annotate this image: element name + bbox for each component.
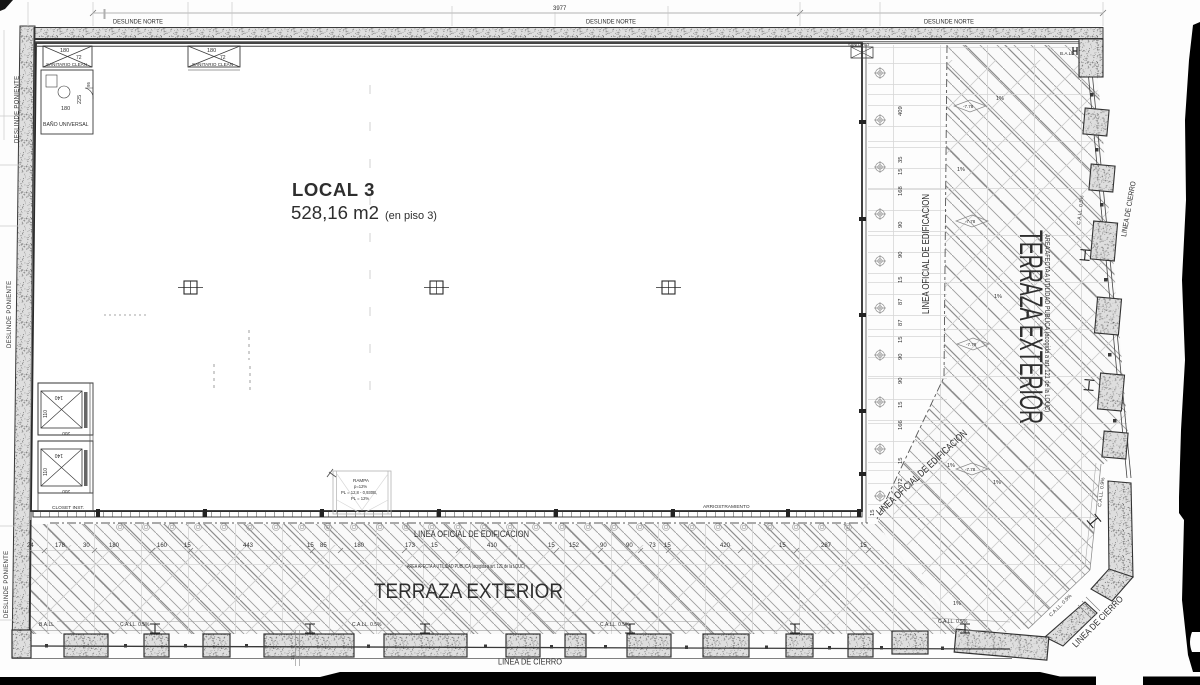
svg-text:AREA AFECTA A UTILIDAD PUBLICA: AREA AFECTA A UTILIDAD PUBLICA (acogida … [1043,234,1050,412]
svg-text:443: 443 [243,543,254,549]
svg-text:SANITARIO CLEAN: SANITARIO CLEAN [46,62,87,67]
svg-text:1%: 1% [994,294,1002,300]
svg-text:(en piso 3): (en piso 3) [385,210,437,222]
svg-text:B.A.LL: B.A.LL [39,622,54,628]
svg-text:168: 168 [898,186,904,196]
svg-text:SANITARIO CLEAN: SANITARIO CLEAN [192,62,233,67]
svg-text:15: 15 [779,543,786,549]
svg-text:LINEA OFICIAL DE EDIFICACION: LINEA OFICIAL DE EDIFICACION [921,194,932,314]
svg-text:-7.78: -7.78 [965,467,976,472]
svg-text:-7.78: -7.78 [966,342,977,347]
svg-text:RAMPA: RAMPA [353,478,370,483]
svg-text:72: 72 [220,55,226,61]
svg-text:225: 225 [77,95,83,104]
svg-text:C.A.LL. 0.5%: C.A.LL. 0.5% [600,622,630,628]
svg-text:DESLINDE PONIENTE: DESLINDE PONIENTE [15,76,21,143]
svg-text:15: 15 [664,543,671,549]
svg-text:15: 15 [184,543,191,549]
svg-text:1%: 1% [996,96,1004,102]
svg-text:CLOSET INST.: CLOSET INST. [52,505,84,511]
svg-text:LINEA DE CIERRO: LINEA DE CIERRO [498,658,562,667]
svg-text:SANITARIO: SANITARIO [848,42,869,47]
svg-text:90: 90 [898,222,904,228]
svg-text:15: 15 [898,277,904,283]
svg-text:15: 15 [548,543,555,549]
svg-text:85: 85 [320,543,327,549]
svg-text:C.A.LL. 0.5%: C.A.LL. 0.5% [120,622,150,628]
svg-text:180: 180 [61,106,70,112]
svg-text:DESLINDE NORTE: DESLINDE NORTE [113,20,163,26]
svg-text:LOCAL 3: LOCAL 3 [292,179,375,200]
svg-text:30: 30 [83,543,90,549]
svg-text:1%: 1% [953,601,961,607]
svg-text:DESLINDE NORTE: DESLINDE NORTE [924,20,974,26]
svg-text:-7.78: -7.78 [963,104,974,109]
svg-text:24: 24 [27,543,34,549]
svg-text:409: 409 [898,106,904,116]
svg-text:72: 72 [76,55,82,61]
svg-text:528,16 m2: 528,16 m2 [291,203,379,223]
svg-text:-7.78: -7.78 [965,219,976,224]
svg-text:1%: 1% [947,463,955,469]
svg-text:178: 178 [55,543,66,549]
svg-text:152: 152 [569,543,580,549]
svg-text:C.A.LL. 0.5%: C.A.LL. 0.5% [352,622,382,628]
svg-text:DESLINDE NORTE: DESLINDE NORTE [586,20,636,26]
svg-text:160: 160 [157,543,168,549]
svg-text:90: 90 [600,543,607,549]
svg-text:87: 87 [898,299,904,305]
svg-text:90: 90 [898,252,904,258]
svg-text:140: 140 [54,394,63,400]
svg-text:PL = 12,8 - 0,930B,: PL = 12,8 - 0,930B, [341,490,377,495]
svg-text:B.A.LL: B.A.LL [1060,51,1074,56]
svg-text:180: 180 [60,48,69,54]
svg-text:180: 180 [109,543,120,549]
svg-text:C.A.LL. 0.5%: C.A.LL. 0.5% [938,619,968,625]
svg-text:ARRIOSTRAMIENTO: ARRIOSTRAMIENTO [703,504,750,510]
svg-text:420: 420 [720,543,731,549]
svg-text:1%: 1% [957,167,965,173]
svg-text:35: 35 [898,157,904,163]
svg-text:90: 90 [898,354,904,360]
svg-text:110: 110 [43,468,49,476]
svg-text:1%: 1% [993,480,1001,486]
svg-text:15: 15 [898,337,904,343]
svg-text:DESLINDE PONIENTE: DESLINDE PONIENTE [4,551,10,618]
svg-text:BAÑO UNIVERSAL: BAÑO UNIVERSAL [43,121,89,128]
svg-text:180: 180 [207,48,216,54]
svg-text:15: 15 [860,543,867,549]
svg-text:AREA AFECTA A UTILIDAD PUBLICA: AREA AFECTA A UTILIDAD PUBLICA (acogida … [407,564,525,570]
svg-text:p=12%: p=12% [354,484,367,489]
svg-text:73: 73 [649,543,656,549]
svg-text:15: 15 [431,543,438,549]
svg-text:180: 180 [354,543,365,549]
svg-text:90: 90 [626,543,633,549]
svg-text:410: 410 [487,543,498,549]
svg-text:TERRAZA EXTERIOR: TERRAZA EXTERIOR [374,579,563,603]
svg-text:166: 166 [898,420,904,430]
svg-text:200: 200 [62,431,70,436]
svg-text:15: 15 [307,543,314,549]
svg-text:90: 90 [898,378,904,384]
svg-text:DESLINDE PONIENTE: DESLINDE PONIENTE [7,281,13,348]
svg-text:LINEA OFICIAL DE EDIFICACION: LINEA OFICIAL DE EDIFICACION [414,529,529,539]
svg-text:87: 87 [898,320,904,326]
svg-text:15: 15 [898,169,904,175]
svg-text:15: 15 [290,654,295,660]
svg-text:110: 110 [43,410,49,418]
svg-text:95: 95 [86,81,91,87]
svg-text:15: 15 [898,402,904,408]
svg-text:3977: 3977 [553,6,567,12]
svg-text:287: 287 [821,543,832,549]
svg-text:PL = 12%: PL = 12% [351,496,369,501]
svg-text:140: 140 [54,452,63,458]
